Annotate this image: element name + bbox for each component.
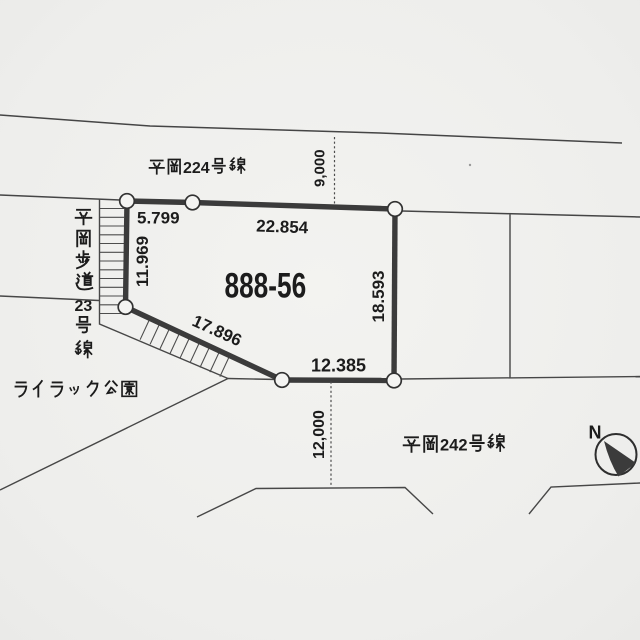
svg-text:11.969: 11.969 [133,236,152,287]
svg-text:12,000: 12,000 [311,410,328,459]
svg-text:9,000: 9,000 [312,149,329,187]
svg-text:N: N [589,423,602,443]
svg-text:12.385: 12.385 [311,356,366,376]
svg-text:5.799: 5.799 [137,209,180,228]
svg-text:242: 242 [440,437,468,455]
svg-text:888-56: 888-56 [225,266,307,306]
svg-text:224: 224 [183,160,210,177]
svg-text:22.854: 22.854 [256,217,309,238]
svg-text:18.593: 18.593 [369,271,388,323]
